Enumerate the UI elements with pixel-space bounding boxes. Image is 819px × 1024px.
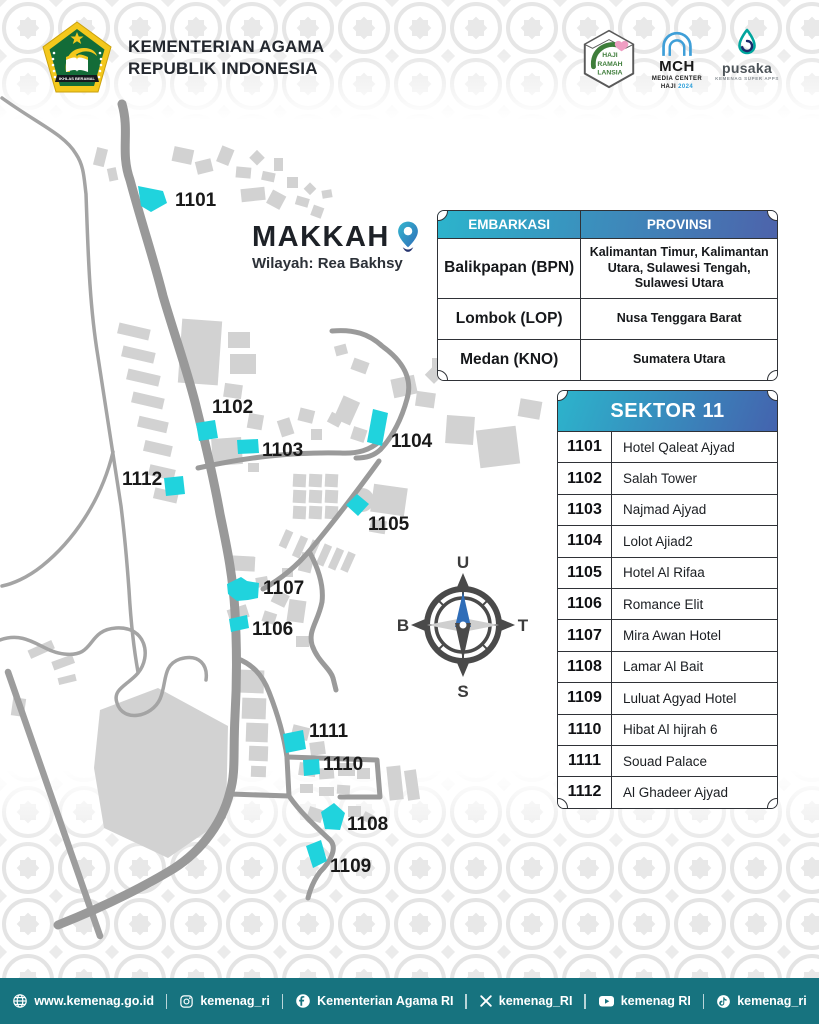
kemenag-brand: IKHLAS BERAMAL KEMENTERIAN AGAMA REPUBLI… <box>40 20 324 96</box>
embarkasi-cell: Medan (KNO) <box>438 340 580 380</box>
embarkasi-table-header: EMBARKASI PROVINSI <box>438 211 777 238</box>
hotel-name: Hotel Al Rifaa <box>611 558 777 588</box>
hotel-code: 1111 <box>558 746 611 776</box>
pusaka-logo: pusaka KEMENAG SUPER APPS <box>715 28 779 82</box>
kemenag-logo-icon: IKHLAS BERAMAL <box>40 20 114 96</box>
embarkasi-table: EMBARKASI PROVINSI Balikpapan (BPN) Kali… <box>437 210 778 381</box>
globe-icon <box>12 993 28 1009</box>
header: IKHLAS BERAMAL KEMENTERIAN AGAMA REPUBLI… <box>0 20 819 96</box>
mch-logo: MCH MEDIA CENTER HAJI 2024 <box>652 28 702 90</box>
footer-link-instagram[interactable]: kemenag_ri <box>179 994 269 1009</box>
hotel-name: Hibat Al hijrah 6 <box>611 715 777 745</box>
tiktok-icon <box>716 994 731 1009</box>
embarkasi-cell: Lombok (LOP) <box>438 299 580 339</box>
hotel-code: 1109 <box>558 683 611 713</box>
divider <box>166 994 167 1009</box>
table-row: Balikpapan (BPN) Kalimantan Timur, Kalim… <box>438 238 777 298</box>
kemenag-logo-banner-text: IKHLAS BERAMAL <box>59 76 96 81</box>
marker-label-1111: 1111 <box>309 721 349 742</box>
embarkasi-col-header: EMBARKASI <box>438 211 580 238</box>
hotel-name: Lamar Al Bait <box>611 652 777 682</box>
youtube-icon <box>598 994 615 1008</box>
compass-label-south: S <box>457 682 468 701</box>
provinsi-cell: Sumatera Utara <box>580 340 777 380</box>
hrl-text-line1: HAJI <box>602 52 618 59</box>
table-row: Medan (KNO) Sumatera Utara <box>438 339 777 380</box>
embarkasi-cell: Balikpapan (BPN) <box>438 239 580 298</box>
mch-haji-year: HAJI 2024 <box>661 84 693 90</box>
mch-media-center: MEDIA CENTER <box>652 76 702 82</box>
hotel-code: 1110 <box>558 715 611 745</box>
footer-social-bar: www.kemenag.go.id kemenag_ri Kementerian… <box>0 978 819 1024</box>
footer-website-label: www.kemenag.go.id <box>34 994 154 1008</box>
footer-link-website[interactable]: www.kemenag.go.id <box>12 993 154 1009</box>
ministry-name-line2: REPUBLIK INDONESIA <box>128 58 324 80</box>
marker-1103 <box>237 439 259 454</box>
table-row: 1107 Mira Awan Hotel <box>558 619 777 650</box>
footer-link-tiktok[interactable]: kemenag_ri <box>716 994 806 1009</box>
table-row: 1102 Salah Tower <box>558 462 777 493</box>
region-title: MAKKAH <box>252 221 390 254</box>
hrl-text-line2: RAMAH <box>597 61 622 68</box>
marker-1110 <box>303 759 320 776</box>
table-row: 1111 Souad Palace <box>558 745 777 776</box>
table-row: 1106 Romance Elit <box>558 588 777 619</box>
hotel-name: Mira Awan Hotel <box>611 620 777 650</box>
sektor-table-title: SEKTOR 11 <box>558 391 777 431</box>
mch-arch-icon <box>658 28 696 58</box>
hotel-name: Lolot Ajiad2 <box>611 526 777 556</box>
hotel-name: Souad Palace <box>611 746 777 776</box>
infographic-page: 1101 1102 1103 1104 1105 1106 1107 1108 … <box>0 0 819 1024</box>
divider <box>584 994 585 1009</box>
pusaka-tagline: KEMENAG SUPER APPS <box>715 77 779 82</box>
hotel-name: Salah Tower <box>611 463 777 493</box>
marker-label-1105: 1105 <box>368 514 410 535</box>
table-row: Lombok (LOP) Nusa Tenggara Barat <box>438 298 777 339</box>
marker-1112 <box>164 476 185 496</box>
pusaka-droplet-icon <box>734 28 760 60</box>
table-row: 1112 Al Ghadeer Ajyad <box>558 776 777 807</box>
mch-year: 2024 <box>678 84 693 90</box>
x-icon <box>479 994 493 1008</box>
sektor-table: SEKTOR 11 1101 Hotel Qaleat Ajyad 1102 S… <box>557 390 778 809</box>
hotel-name: Al Ghadeer Ajyad <box>611 777 777 807</box>
pusaka-name: pusaka <box>722 61 772 75</box>
marker-label-1106: 1106 <box>252 619 293 640</box>
marker-label-1110: 1110 <box>323 754 363 775</box>
marker-label-1103: 1103 <box>262 440 303 461</box>
marker-label-1109: 1109 <box>330 856 371 877</box>
hrl-text-line3: LANSIA <box>597 70 622 77</box>
mch-abbr: MCH <box>659 59 695 74</box>
footer-link-youtube[interactable]: kemenag RI <box>598 994 691 1008</box>
footer-tiktok-label: kemenag_ri <box>737 994 806 1008</box>
marker-label-1102: 1102 <box>212 397 253 418</box>
table-row: 1101 Hotel Qaleat Ajyad <box>558 431 777 462</box>
hotel-code: 1105 <box>558 558 611 588</box>
provinsi-cell: Kalimantan Timur, Kalimantan Utara, Sula… <box>580 239 777 298</box>
marker-label-1112: 1112 <box>122 469 162 490</box>
divider <box>465 994 466 1009</box>
compass-rose: U T S B <box>397 553 529 701</box>
mch-haji: HAJI <box>661 84 676 90</box>
provinsi-col-header: PROVINSI <box>580 211 777 238</box>
ministry-name-line1: KEMENTERIAN AGAMA <box>128 36 324 58</box>
compass-label-west: B <box>397 616 409 635</box>
marker-label-1101: 1101 <box>175 190 217 211</box>
marker-label-1104: 1104 <box>391 431 433 452</box>
hotel-code: 1103 <box>558 495 611 525</box>
footer-link-facebook[interactable]: Kementerian Agama RI <box>295 993 453 1009</box>
haji-ramah-lansia-logo: HAJI RAMAH LANSIA <box>579 28 639 90</box>
partner-logos: HAJI RAMAH LANSIA MCH MEDIA CENTER HAJI … <box>579 20 779 96</box>
facebook-icon <box>295 993 311 1009</box>
marker-label-1108: 1108 <box>347 814 388 835</box>
hotel-name: Najmad Ajyad <box>611 495 777 525</box>
table-row: 1103 Najmad Ajyad <box>558 494 777 525</box>
hotel-name: Luluat Agyad Hotel <box>611 683 777 713</box>
table-row: 1109 Luluat Agyad Hotel <box>558 682 777 713</box>
hotel-code: 1102 <box>558 463 611 493</box>
region-subtitle: Wilayah: Rea Bakhsy <box>252 255 421 272</box>
footer-x-label: kemenag_RI <box>499 994 573 1008</box>
marker-label-1107: 1107 <box>263 578 304 599</box>
instagram-icon <box>179 994 194 1009</box>
footer-link-x[interactable]: kemenag_RI <box>479 994 573 1008</box>
table-row: 1105 Hotel Al Rifaa <box>558 557 777 588</box>
footer-youtube-label: kemenag RI <box>621 994 691 1008</box>
footer-facebook-label: Kementerian Agama RI <box>317 994 453 1008</box>
footer-instagram-label: kemenag_ri <box>200 994 269 1008</box>
divider <box>282 994 283 1009</box>
ministry-name: KEMENTERIAN AGAMA REPUBLIK INDONESIA <box>128 36 324 81</box>
compass-label-east: T <box>518 616 529 635</box>
table-row: 1104 Lolot Ajiad2 <box>558 525 777 556</box>
hotel-code: 1107 <box>558 620 611 650</box>
hotel-code: 1106 <box>558 589 611 619</box>
hotel-name: Hotel Qaleat Ajyad <box>611 432 777 462</box>
table-row: 1110 Hibat Al hijrah 6 <box>558 714 777 745</box>
table-row: 1108 Lamar Al Bait <box>558 651 777 682</box>
hotel-code: 1108 <box>558 652 611 682</box>
hotel-name: Romance Elit <box>611 589 777 619</box>
provinsi-cell: Nusa Tenggara Barat <box>580 299 777 339</box>
marker-1102 <box>196 420 218 441</box>
location-pin-icon <box>395 220 421 254</box>
divider <box>703 994 704 1009</box>
hotel-code: 1104 <box>558 526 611 556</box>
compass-label-north: U <box>457 553 469 572</box>
region-title-block: MAKKAH Wilayah: Rea Bakhsy <box>252 220 421 272</box>
marker-1111 <box>283 730 306 753</box>
hotel-code: 1101 <box>558 432 611 462</box>
